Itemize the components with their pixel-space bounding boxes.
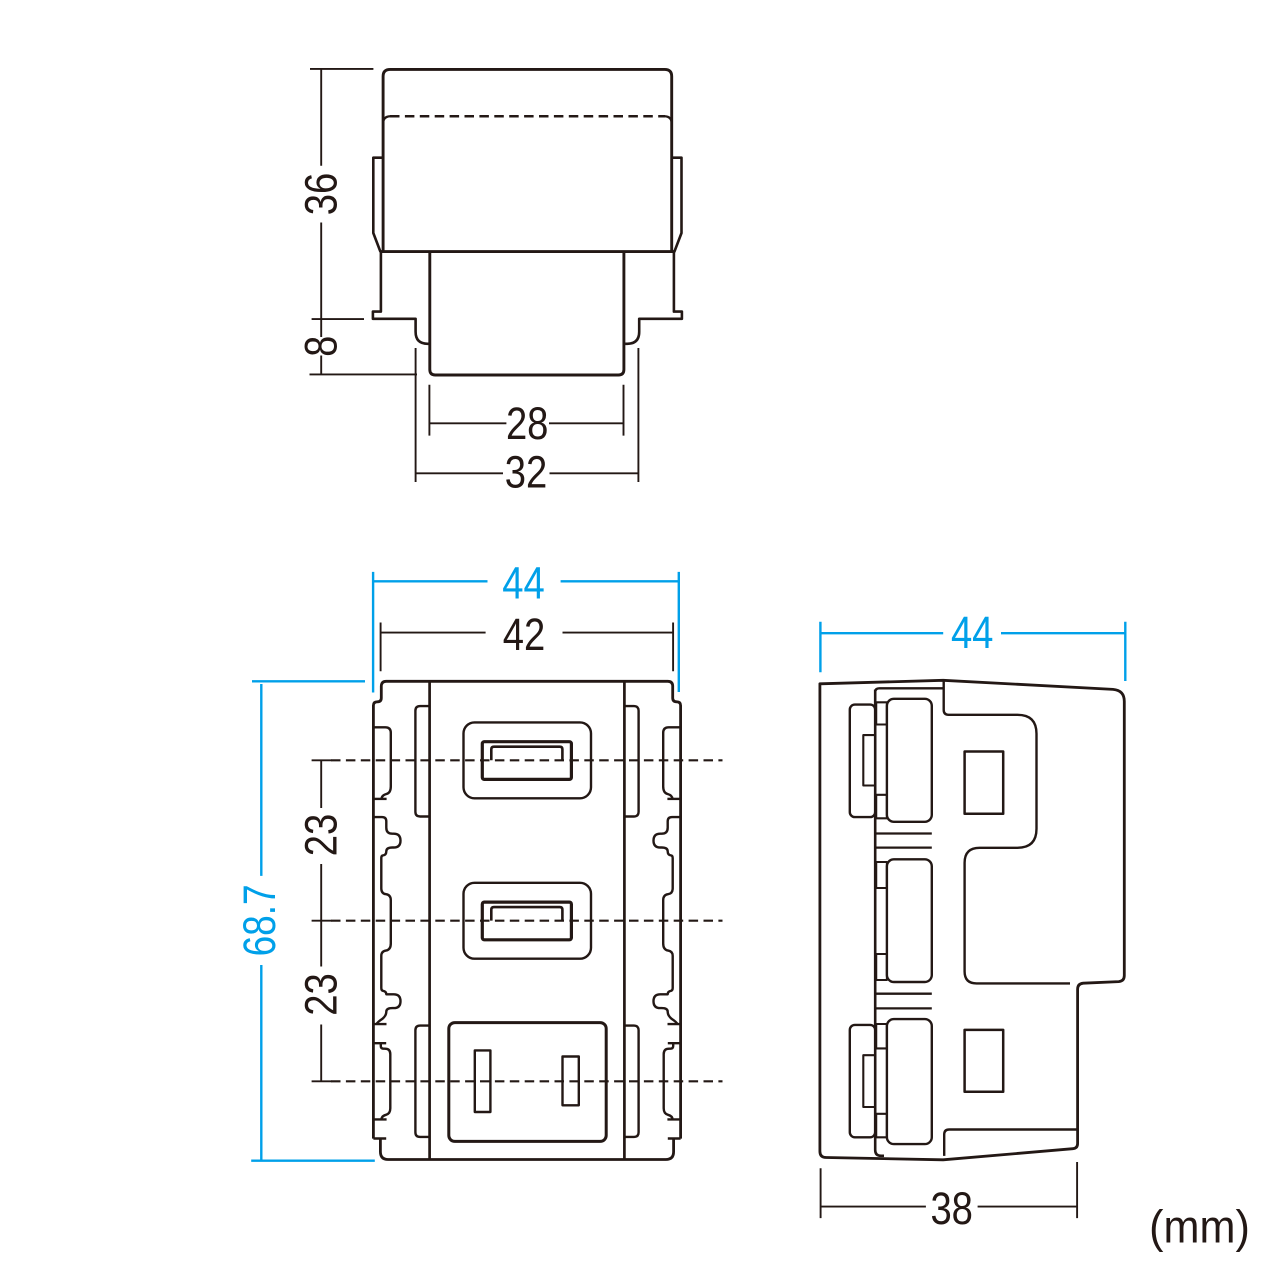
svg-text:8: 8 [295,336,346,357]
svg-text:44: 44 [502,557,545,608]
svg-text:(mm): (mm) [1149,1201,1250,1253]
svg-text:42: 42 [503,609,546,660]
svg-text:32: 32 [505,447,548,498]
svg-text:36: 36 [295,173,346,216]
svg-text:28: 28 [506,398,549,449]
svg-text:44: 44 [951,607,994,658]
svg-text:38: 38 [930,1183,973,1234]
svg-text:68.7: 68.7 [234,884,285,956]
svg-text:23: 23 [295,973,346,1016]
svg-text:23: 23 [295,814,346,857]
